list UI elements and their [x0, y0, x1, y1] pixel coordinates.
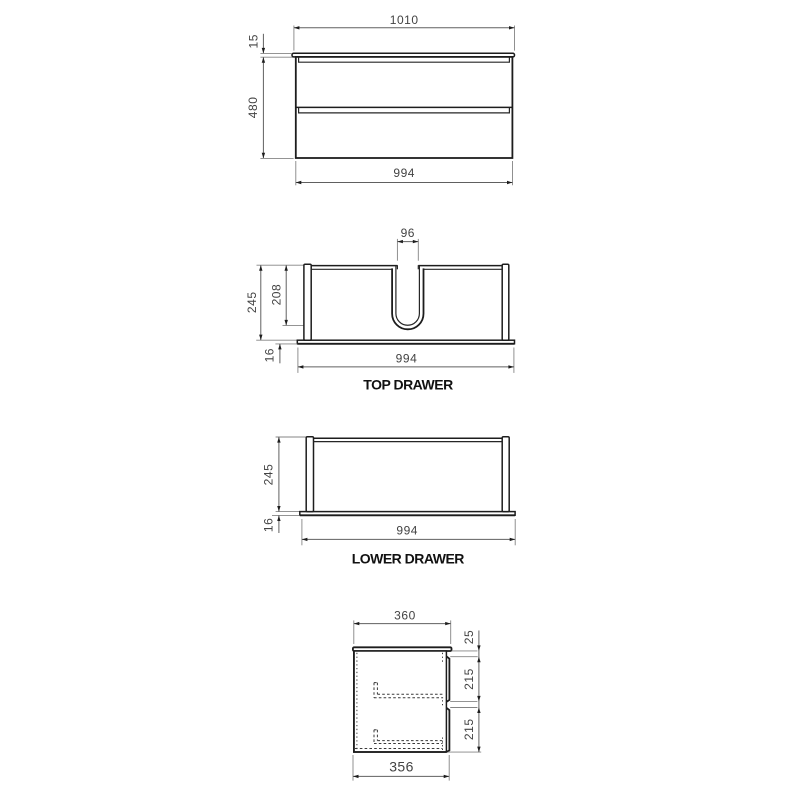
svg-text:1010: 1010: [390, 13, 419, 27]
svg-text:16: 16: [263, 348, 277, 362]
svg-text:208: 208: [269, 284, 283, 306]
svg-text:356: 356: [389, 758, 414, 774]
svg-text:360: 360: [394, 609, 416, 623]
svg-text:96: 96: [401, 226, 415, 240]
svg-text:245: 245: [262, 464, 276, 486]
svg-text:16: 16: [262, 518, 276, 532]
svg-text:15: 15: [247, 34, 261, 48]
svg-text:245: 245: [245, 291, 259, 313]
svg-text:994: 994: [393, 166, 415, 180]
svg-text:215: 215: [462, 718, 476, 740]
svg-text:LOWER DRAWER: LOWER DRAWER: [352, 551, 465, 567]
svg-text:994: 994: [396, 352, 418, 366]
svg-text:994: 994: [396, 523, 418, 537]
svg-text:25: 25: [462, 630, 476, 644]
svg-text:480: 480: [246, 97, 260, 119]
svg-text:215: 215: [462, 668, 476, 690]
svg-text:TOP DRAWER: TOP DRAWER: [363, 377, 453, 393]
